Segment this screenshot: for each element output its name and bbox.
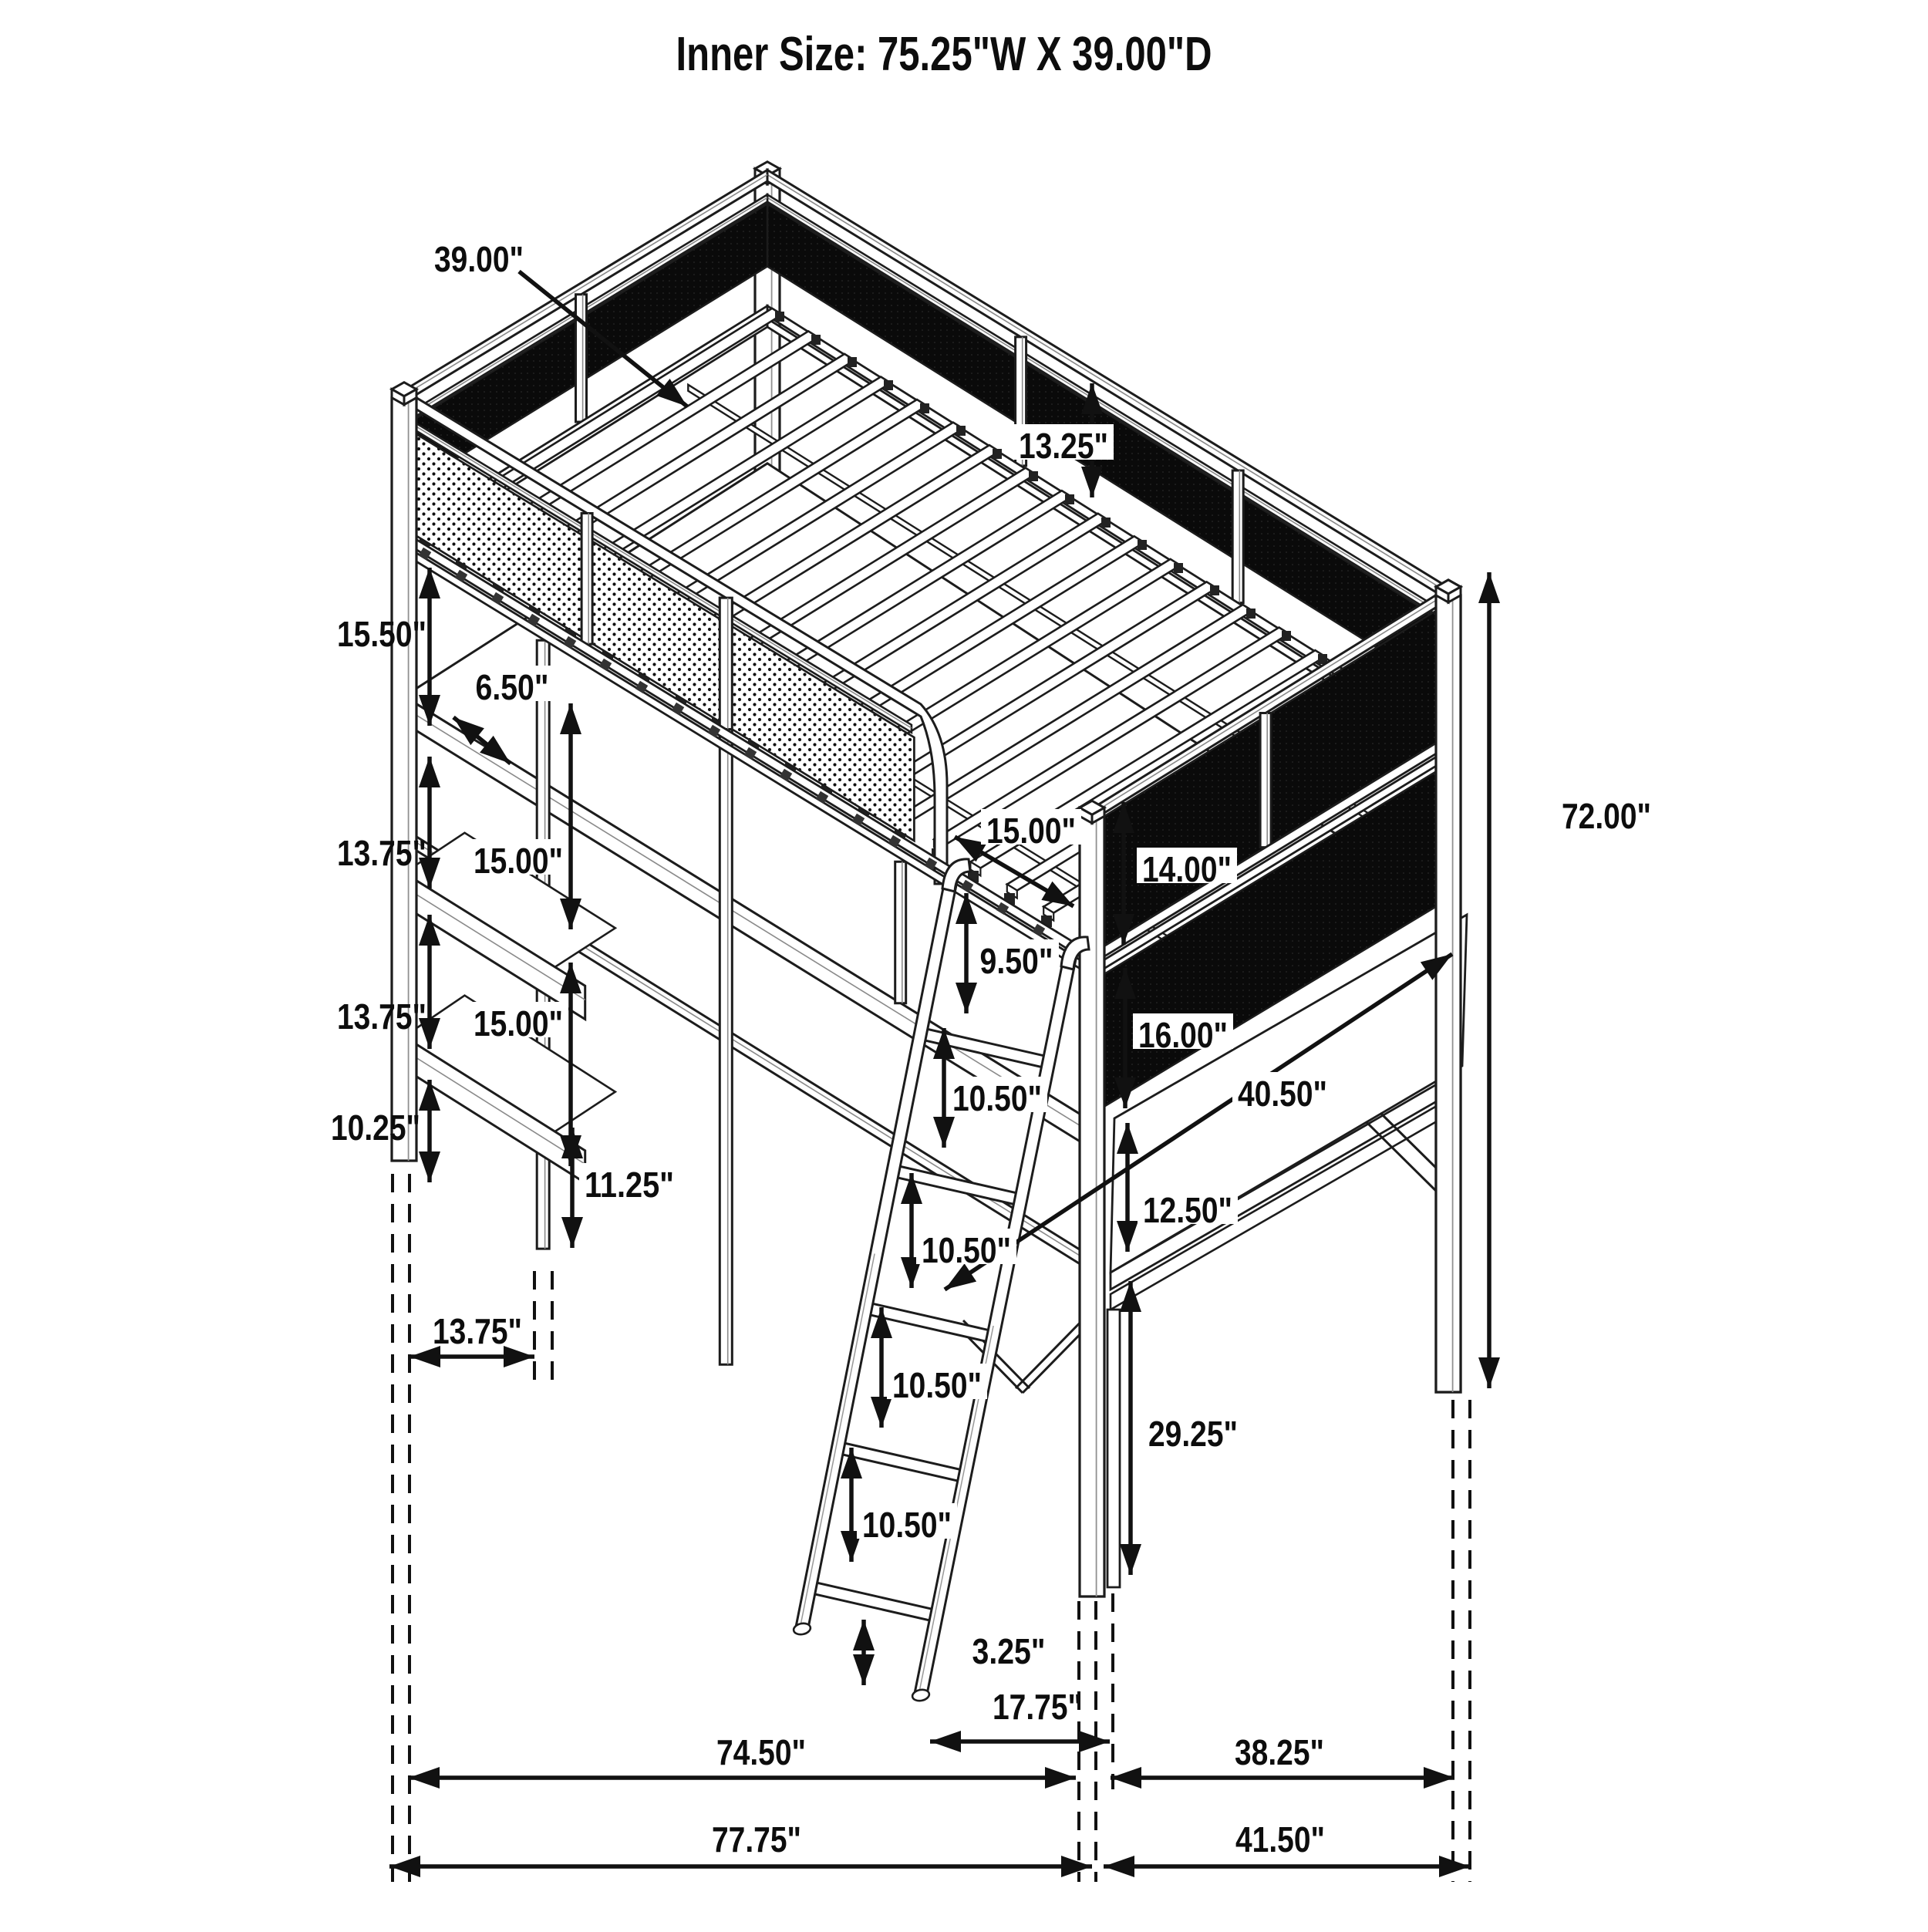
svg-text:10.50": 10.50" [862,1505,952,1545]
svg-text:6.50": 6.50" [476,667,549,707]
svg-text:13.75": 13.75" [337,996,426,1037]
svg-text:15.00": 15.00" [474,841,563,881]
svg-text:10.50": 10.50" [922,1230,1011,1270]
svg-text:10.50": 10.50" [952,1078,1042,1118]
svg-text:77.75": 77.75" [712,1819,801,1860]
svg-text:72.00": 72.00" [1562,796,1651,836]
svg-text:12.50": 12.50" [1143,1190,1232,1230]
svg-text:13.25": 13.25" [1019,426,1108,466]
svg-text:10.50": 10.50" [892,1365,982,1405]
svg-text:15.00": 15.00" [986,811,1076,851]
svg-text:13.75": 13.75" [337,833,426,873]
svg-text:15.50": 15.50" [337,614,426,654]
svg-text:17.75": 17.75" [993,1687,1082,1727]
svg-text:13.75": 13.75" [433,1311,522,1351]
svg-text:9.50": 9.50" [980,941,1053,981]
svg-text:40.50": 40.50" [1238,1074,1327,1114]
svg-text:3.25": 3.25" [972,1631,1046,1671]
svg-text:11.25": 11.25" [585,1165,674,1205]
svg-text:39.00": 39.00" [434,239,524,279]
svg-text:14.00": 14.00" [1142,849,1232,889]
svg-text:74.50": 74.50" [716,1732,806,1772]
svg-text:Inner Size: 75.25"W X 39.00"D: Inner Size: 75.25"W X 39.00"D [676,28,1212,81]
svg-text:15.00": 15.00" [474,1003,563,1044]
svg-text:16.00": 16.00" [1138,1015,1228,1055]
svg-text:10.25": 10.25" [331,1108,420,1148]
svg-text:41.50": 41.50" [1235,1819,1325,1860]
svg-text:38.25": 38.25" [1235,1732,1324,1772]
svg-text:29.25": 29.25" [1148,1414,1238,1454]
